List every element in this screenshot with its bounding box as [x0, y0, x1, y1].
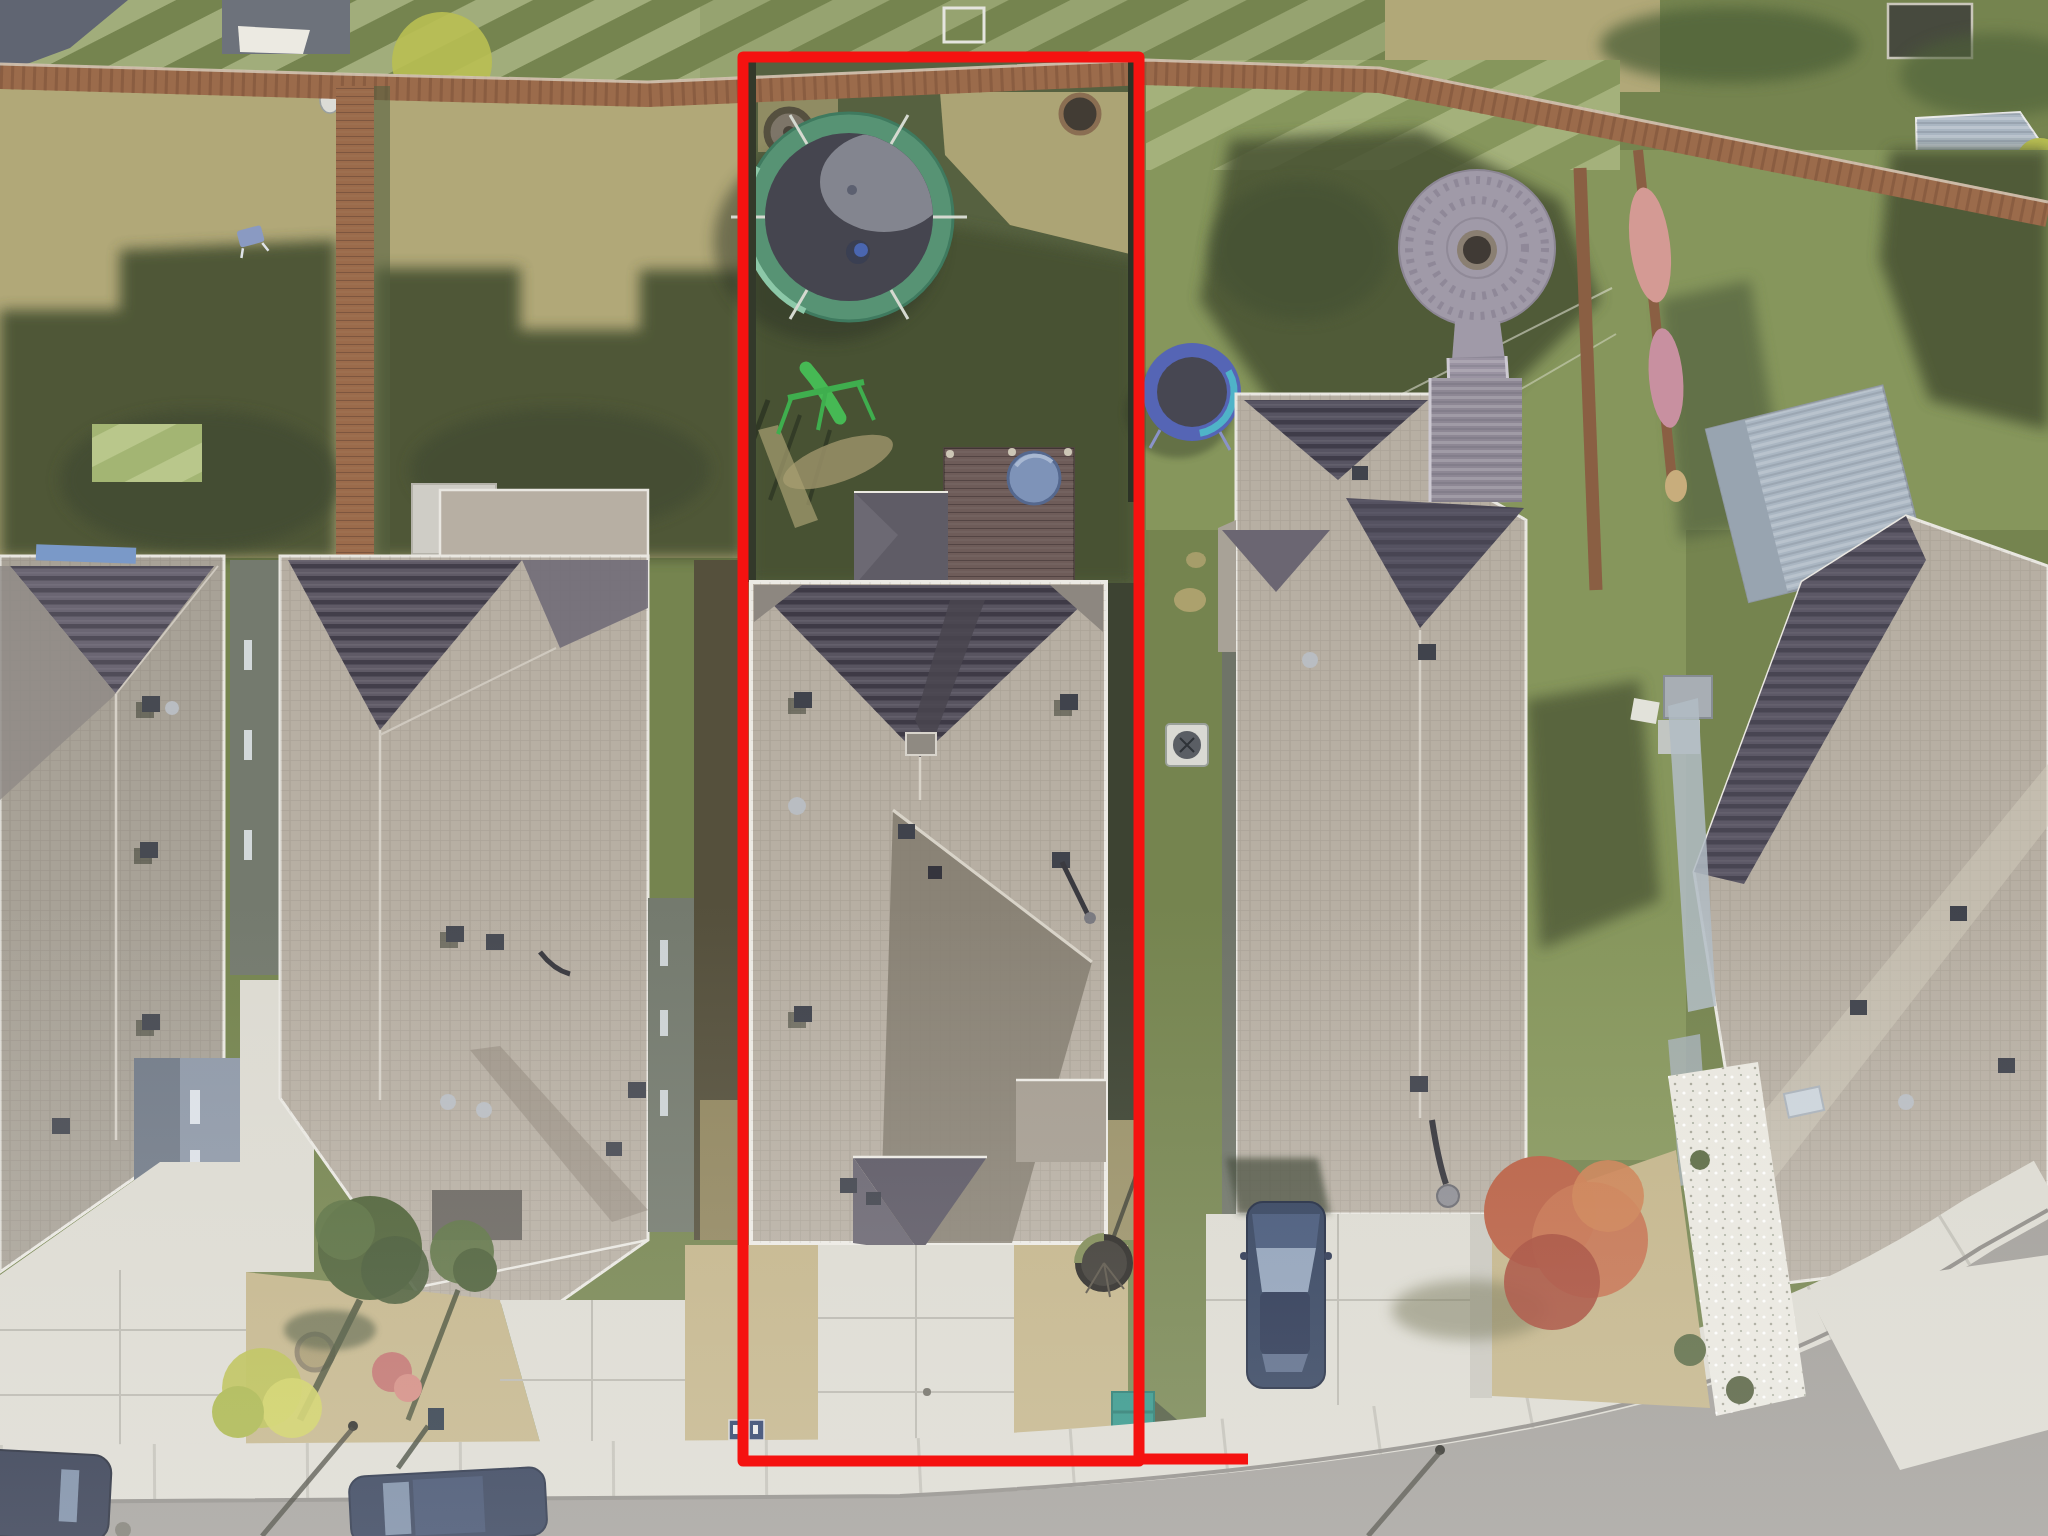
item-on-mat [847, 185, 857, 195]
ac-unit [1166, 724, 1208, 766]
paver-neck [1452, 322, 1505, 360]
blue-item-on-mat [854, 243, 868, 257]
fence-shadow [374, 86, 390, 564]
rear-porch-roof [854, 492, 948, 586]
chimney [906, 733, 936, 755]
roof-vent [140, 842, 158, 858]
tree-shadow [1600, 7, 1860, 83]
roof-vent [1418, 644, 1436, 660]
back-deck [1430, 378, 1522, 502]
tan-item [1665, 470, 1687, 502]
yard-house1 [0, 86, 340, 558]
metal-vent [165, 701, 179, 715]
paver-patio-circle [1399, 170, 1555, 326]
side-fence-boards [336, 86, 374, 564]
mat [1157, 357, 1227, 427]
roof-vent [898, 824, 915, 839]
roof-vent [794, 692, 812, 708]
white-item [1630, 698, 1659, 724]
fire-pit [1463, 236, 1491, 264]
sun-haze [0, 900, 2048, 1536]
aerial-photo [0, 0, 2048, 1536]
roof-vent [1060, 694, 1078, 710]
aerial-photo-stage [0, 0, 2048, 1536]
roof-vent [1352, 466, 1368, 480]
rear-wing-roof [440, 490, 648, 560]
roof-vent [142, 696, 160, 712]
dry-shrub [1174, 588, 1206, 612]
round-planter [1061, 95, 1099, 133]
metal-vent [788, 797, 806, 815]
tree-shadow [1210, 180, 1390, 320]
metal-vent [1302, 652, 1318, 668]
neighbor-gable [238, 26, 310, 54]
sunlit-stripes [92, 424, 202, 482]
dry-shrub [1186, 552, 1206, 568]
deck-slats [1430, 378, 1522, 502]
wood-deck [944, 448, 1074, 591]
roof-vent [928, 866, 942, 879]
yard-subject [711, 60, 1134, 591]
